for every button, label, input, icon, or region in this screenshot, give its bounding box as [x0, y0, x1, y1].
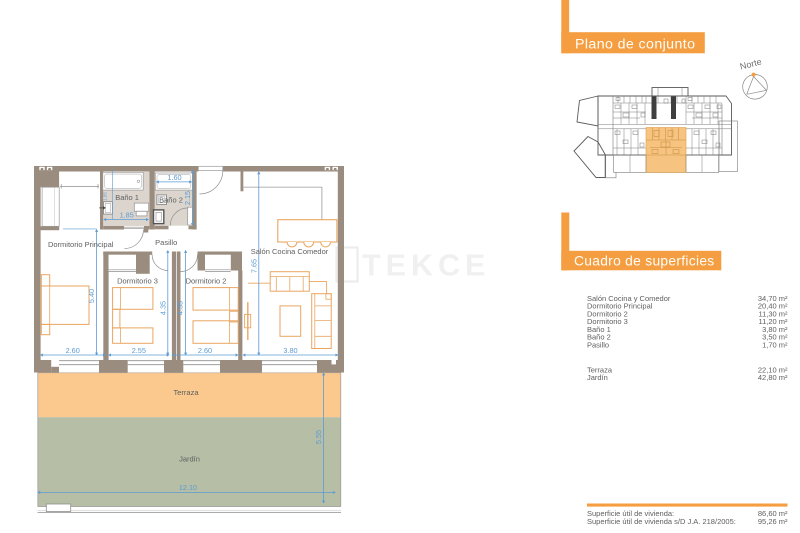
svg-text:Pasillo: Pasillo — [587, 340, 609, 349]
svg-text:7.65: 7.65 — [249, 259, 258, 273]
svg-text:2.15: 2.15 — [183, 191, 192, 205]
svg-text:2.55: 2.55 — [132, 346, 146, 355]
svg-text:12.10: 12.10 — [179, 483, 197, 492]
svg-text:Dormitorio 3: Dormitorio 3 — [117, 276, 158, 285]
svg-text:Salón Cocina Comedor: Salón Cocina Comedor — [251, 247, 329, 256]
svg-text:Terraza: Terraza — [173, 388, 199, 397]
svg-text:1.60: 1.60 — [167, 173, 181, 182]
svg-text:Plano de conjunto: Plano de conjunto — [575, 36, 695, 52]
svg-text:1,70 m²: 1,70 m² — [762, 340, 788, 349]
svg-text:1.85: 1.85 — [120, 211, 134, 220]
svg-text:3.80: 3.80 — [283, 346, 297, 355]
svg-text:Norte: Norte — [739, 57, 763, 72]
svg-text:4.35: 4.35 — [176, 301, 185, 315]
svg-text:4.35: 4.35 — [158, 301, 167, 315]
svg-text:Dormitorio Principal: Dormitorio Principal — [48, 240, 114, 249]
svg-text:Jardín: Jardín — [587, 373, 608, 382]
svg-text:5.55: 5.55 — [314, 430, 323, 444]
svg-text:5.40: 5.40 — [87, 289, 96, 303]
svg-text:2.60: 2.60 — [66, 346, 80, 355]
svg-text:Baño 2: Baño 2 — [159, 195, 183, 204]
svg-text:1.05: 1.05 — [103, 192, 108, 201]
svg-text:2.60: 2.60 — [198, 346, 212, 355]
svg-text:Baño 1: Baño 1 — [115, 193, 139, 202]
svg-text:Superficie útil de vivienda s/: Superficie útil de vivienda s/D J.A. 218… — [587, 517, 736, 526]
svg-text:Jardín: Jardín — [179, 455, 200, 464]
svg-text:42,80 m²: 42,80 m² — [758, 373, 788, 382]
svg-text:Pasillo: Pasillo — [155, 238, 177, 247]
svg-text:Cuadro de superficies: Cuadro de superficies — [574, 254, 715, 269]
svg-text:95,26 m²: 95,26 m² — [758, 517, 788, 526]
svg-text:TEKCE: TEKCE — [362, 249, 490, 283]
svg-text:Dormitorio 2: Dormitorio 2 — [186, 276, 227, 285]
